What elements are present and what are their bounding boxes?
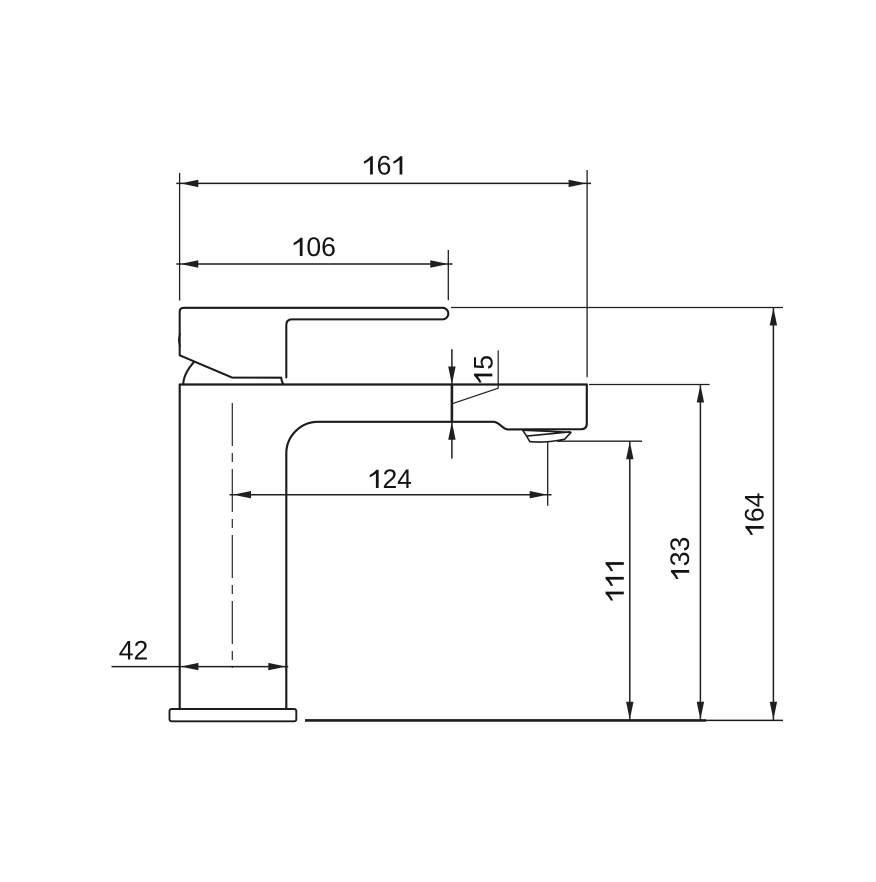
svg-text:5: 5 bbox=[468, 355, 498, 370]
svg-text:24: 24 bbox=[382, 464, 411, 494]
svg-text:06: 06 bbox=[306, 232, 335, 262]
svg-text:42: 42 bbox=[119, 636, 148, 666]
svg-text:6: 6 bbox=[377, 151, 392, 181]
svg-text:64: 64 bbox=[740, 493, 770, 522]
svg-text:33: 33 bbox=[665, 537, 695, 566]
